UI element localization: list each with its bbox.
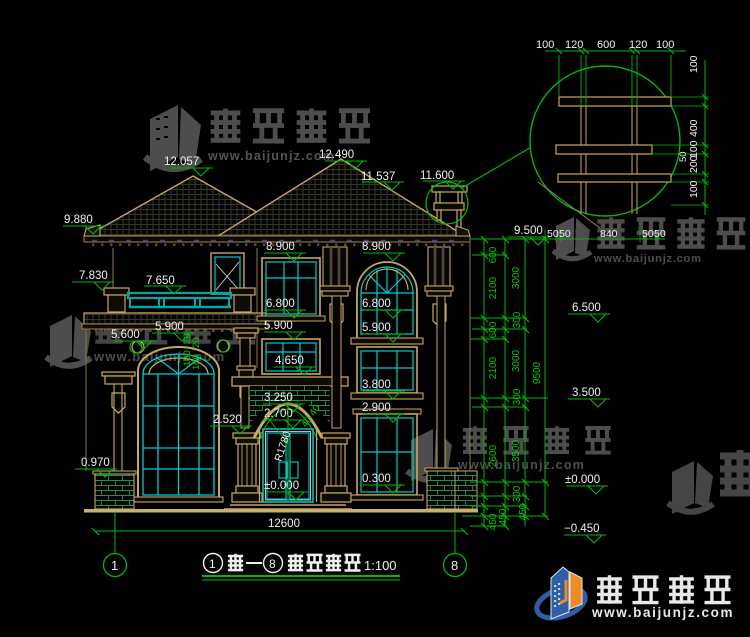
svg-text:±0.000: ±0.000 <box>565 474 600 486</box>
svg-text:50: 50 <box>547 228 559 240</box>
svg-text:3000: 3000 <box>511 266 522 289</box>
svg-text:7.650: 7.650 <box>146 275 175 287</box>
svg-text:www.baijunjz.com: www.baijunjz.com <box>593 253 702 265</box>
svg-text:±0.000: ±0.000 <box>264 480 299 492</box>
svg-text:3.250: 3.250 <box>264 392 293 404</box>
svg-text:5.900: 5.900 <box>264 320 293 332</box>
svg-text:100: 100 <box>656 39 674 51</box>
svg-text:5.600: 5.600 <box>111 329 140 341</box>
svg-text:2100: 2100 <box>488 276 499 299</box>
svg-text:4.650: 4.650 <box>275 355 304 367</box>
svg-text:2.900: 2.900 <box>362 402 391 414</box>
svg-text:8: 8 <box>269 557 276 571</box>
svg-text:300: 300 <box>512 485 523 502</box>
svg-text:3.500: 3.500 <box>572 387 601 399</box>
svg-text:8.900: 8.900 <box>362 241 391 253</box>
svg-text:1:100: 1:100 <box>364 558 397 573</box>
svg-text:8: 8 <box>451 558 458 573</box>
svg-text:6.800: 6.800 <box>362 298 391 310</box>
svg-text:2100: 2100 <box>488 356 499 379</box>
svg-text:5.900: 5.900 <box>155 321 184 333</box>
svg-text:50: 50 <box>559 228 571 240</box>
svg-text:2.520: 2.520 <box>213 414 242 426</box>
svg-text:www.baijunjz.com: www.baijunjz.com <box>591 605 734 620</box>
svg-text:120: 120 <box>629 39 647 51</box>
svg-text:9.500: 9.500 <box>514 225 543 237</box>
svg-text:100: 100 <box>688 180 700 198</box>
svg-text:840: 840 <box>600 228 618 240</box>
svg-text:−0.450: −0.450 <box>564 523 600 535</box>
svg-text:120: 120 <box>565 39 583 51</box>
svg-text:300: 300 <box>512 388 523 405</box>
svg-text:11.537: 11.537 <box>361 171 395 183</box>
svg-text:12600: 12600 <box>268 518 300 530</box>
svg-text:180: 180 <box>191 354 202 370</box>
svg-text:50: 50 <box>654 228 666 240</box>
svg-text:9.880: 9.880 <box>64 214 93 226</box>
svg-text:6.500: 6.500 <box>572 302 601 314</box>
svg-text:www.baijunjz.com: www.baijunjz.com <box>207 149 335 163</box>
svg-text:6.800: 6.800 <box>266 298 295 310</box>
svg-text:600: 600 <box>488 246 499 263</box>
svg-text:12.057: 12.057 <box>164 156 199 168</box>
svg-text:11.600: 11.600 <box>420 170 454 182</box>
svg-text:300: 300 <box>512 311 523 328</box>
svg-text:3.800: 3.800 <box>362 379 391 391</box>
svg-text:1: 1 <box>111 558 118 573</box>
svg-text:20: 20 <box>191 337 202 348</box>
svg-text:100: 100 <box>536 39 554 51</box>
svg-text:600: 600 <box>597 39 615 51</box>
svg-text:200: 200 <box>688 155 700 173</box>
svg-text:2600: 2600 <box>488 444 499 467</box>
svg-text:9500: 9500 <box>532 361 543 384</box>
svg-text:100: 100 <box>688 140 700 158</box>
svg-text:12.490: 12.490 <box>319 149 354 161</box>
svg-text:1: 1 <box>209 557 216 571</box>
svg-text:3500: 3500 <box>511 439 522 462</box>
svg-text:50: 50 <box>642 228 654 240</box>
svg-text:8.900: 8.900 <box>266 241 295 253</box>
svg-text:3000: 3000 <box>511 349 522 372</box>
svg-text:7.830: 7.830 <box>79 270 108 282</box>
svg-text:0.300: 0.300 <box>362 473 391 485</box>
svg-text:400: 400 <box>688 119 700 137</box>
svg-text:5.900: 5.900 <box>362 322 391 334</box>
svg-text:100: 100 <box>688 55 700 73</box>
svg-text:600: 600 <box>488 321 499 338</box>
svg-text:450: 450 <box>498 508 509 525</box>
svg-text:0.970: 0.970 <box>81 457 110 469</box>
svg-text:450: 450 <box>518 503 529 520</box>
